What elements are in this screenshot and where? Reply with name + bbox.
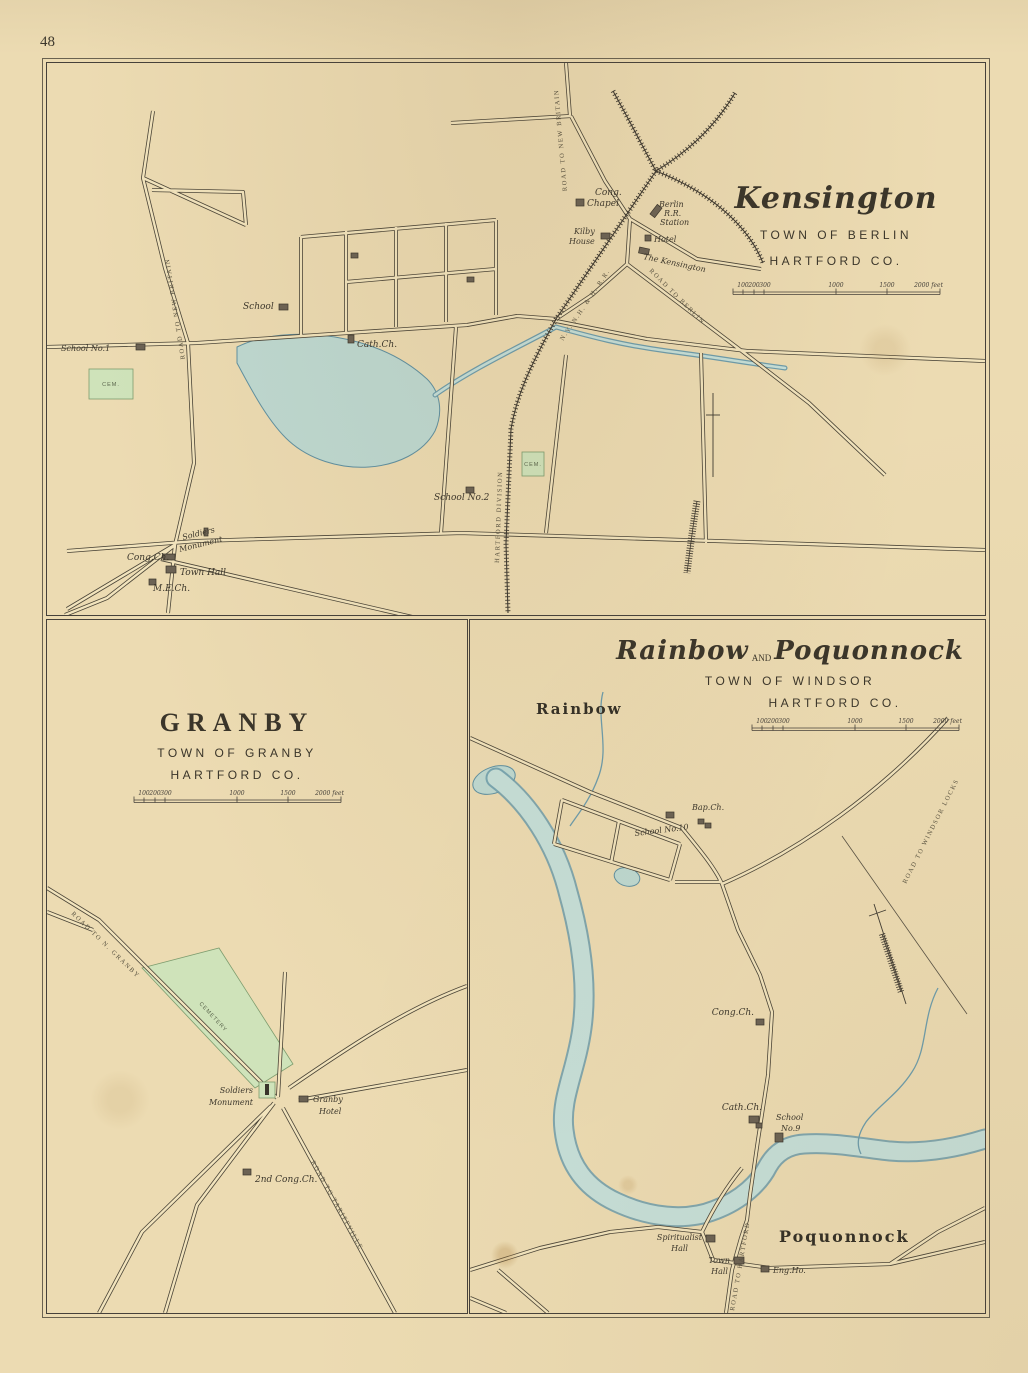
road-to-n-granby-label: ROAD TO N. GRANBY [70, 910, 142, 979]
road-to-tariffville-label: ROAD TO TARIFFVILLE [309, 1160, 364, 1252]
cong-ch-label: Cong.Ch. [127, 553, 169, 563]
station-label: Berlin [658, 200, 684, 209]
bap-ch-label: Bap.Ch. [691, 803, 724, 812]
school-no9-label2: No.9 [780, 1124, 800, 1133]
rainbow-poquonnock-map-panel: Rainbow Poquonnock School No.10 Bap.Ch. … [469, 619, 986, 1314]
road-to-new-britain-n-label: ROAD TO NEW BRITAIN [553, 89, 569, 192]
scale-tick: 300 [759, 282, 771, 289]
kensington-map: School No.1 CEM. ROAD TO NEW BRITAIN Sch… [47, 63, 985, 615]
second-cong-ch-label: 2nd Cong.Ch. [254, 1175, 318, 1185]
kensington-map-panel: School No.1 CEM. ROAD TO NEW BRITAIN Sch… [46, 62, 986, 616]
scale-tick: 200 [747, 282, 760, 289]
scale-tick: 1500 [898, 718, 913, 725]
map-town: TOWN OF BERLIN [711, 228, 961, 242]
granby-title-block: GRANBY TOWN OF GRANBY HARTFORD CO. 100 2… [102, 708, 372, 810]
station-label3: Station [660, 218, 689, 227]
spiritualist-hall-label: Spiritualist [657, 1233, 703, 1242]
scale-end: 2000 feet [932, 718, 962, 725]
school-label: School [243, 302, 274, 312]
scale-tick: 100 [138, 790, 150, 797]
scale-tick: 1500 [879, 282, 894, 289]
scale-tick: 100 [756, 718, 768, 725]
scale-tick: 1000 [828, 282, 843, 289]
soldiers-monument-label: Soldiers [220, 1086, 253, 1095]
pond [237, 334, 440, 467]
school-no2-label: School No.2 [434, 493, 490, 503]
map-title: Kensington [711, 181, 961, 216]
map-title-left: Rainbow [616, 636, 749, 666]
map-county: HARTFORD CO. [102, 768, 372, 782]
school-no9-label: School [776, 1113, 804, 1122]
scale-end: 2000 feet [913, 282, 943, 289]
map-town: TOWN OF GRANBY [102, 746, 372, 760]
scale-tick: 300 [778, 718, 790, 725]
granby-hotel-label: Granby [313, 1095, 343, 1104]
granby-monument [259, 1082, 275, 1098]
scale-tick: 1500 [280, 790, 295, 797]
granby-hotel-label2: Hotel [318, 1107, 342, 1116]
scale-tick: 300 [160, 790, 172, 797]
spiritualist-hall-label2: Hall [670, 1244, 688, 1253]
map-title-right: Poquonnock [774, 636, 964, 666]
map-title: RainbowANDPoquonnock [595, 636, 985, 666]
boundary-line [842, 836, 967, 1014]
cemetery-label2: CEM. [524, 462, 542, 468]
hotel-label: Hotel [653, 235, 677, 244]
stream [858, 988, 938, 1154]
road-to-berlin-label: ROAD TO BERLIN [648, 267, 707, 326]
map-county: HARTFORD CO. [711, 254, 961, 268]
cath-ch-label: Cath.Ch. [357, 340, 397, 350]
school-no1-label: School No.1 [61, 344, 110, 353]
scale-tick: 100 [737, 282, 749, 289]
cemetery-label: CEM. [102, 382, 120, 388]
cong-ch-label: Cong.Ch. [712, 1008, 754, 1018]
scale-tick: 1000 [229, 790, 244, 797]
scale-tick: 200 [766, 718, 779, 725]
map-town: TOWN OF WINDSOR [595, 674, 985, 688]
kensington-title-block: Kensington TOWN OF BERLIN HARTFORD CO. 1… [711, 181, 961, 302]
map-county: HARTFORD CO. [595, 696, 985, 710]
eng-ho-label: Eng.Ho. [772, 1266, 806, 1275]
map-title: GRANBY [102, 708, 372, 738]
me-ch-label: M.E.Ch. [152, 584, 190, 594]
poquonnock-place-label: Poquonnock [779, 1227, 910, 1246]
granby-cemetery: CEMETERY [142, 948, 293, 1088]
map-title-and: AND [752, 653, 772, 663]
town-hall-label: Town Hall [180, 568, 226, 578]
kilby-house-label2: House [568, 237, 595, 246]
scale-bar: 100 200 300 1000 1500 2000 feet [748, 716, 963, 734]
road-to-windsor-locks-label: ROAD TO WINDSOR LOCKS [902, 778, 961, 885]
rainbow-title-block: RainbowANDPoquonnock TOWN OF WINDSOR HAR… [595, 636, 985, 738]
scale-tick: 200 [148, 790, 161, 797]
town-hall-label2: Hall [710, 1267, 728, 1276]
scale-bar: 100 200 300 1000 1500 2000 feet [130, 788, 345, 806]
page-number: 48 [40, 34, 55, 51]
kilby-house-label: Kilby [573, 227, 595, 236]
cong-chapel-label2: Chapel [587, 199, 619, 209]
cath-ch-label: Cath.Ch. [722, 1103, 762, 1113]
granby-map-panel: CEMETERY ROAD TO N. GRANBY ROAD TO TARIF… [46, 619, 468, 1314]
town-hall-label: Town [708, 1256, 730, 1265]
railroad-division-label: HARTFORD DIVISION [494, 471, 504, 564]
scale-tick: 1000 [847, 718, 862, 725]
scale-end: 2000 feet [314, 790, 344, 797]
cong-chapel-label: Cong. [595, 188, 622, 198]
scale-bar: 100 200 300 1000 1500 2000 feet [729, 280, 944, 298]
atlas-page: { "page": {"number": "48"}, "colors": { … [0, 0, 1028, 1373]
station-label2: R.R. [663, 209, 681, 218]
soldiers-monument-label2: Monument [208, 1098, 254, 1107]
